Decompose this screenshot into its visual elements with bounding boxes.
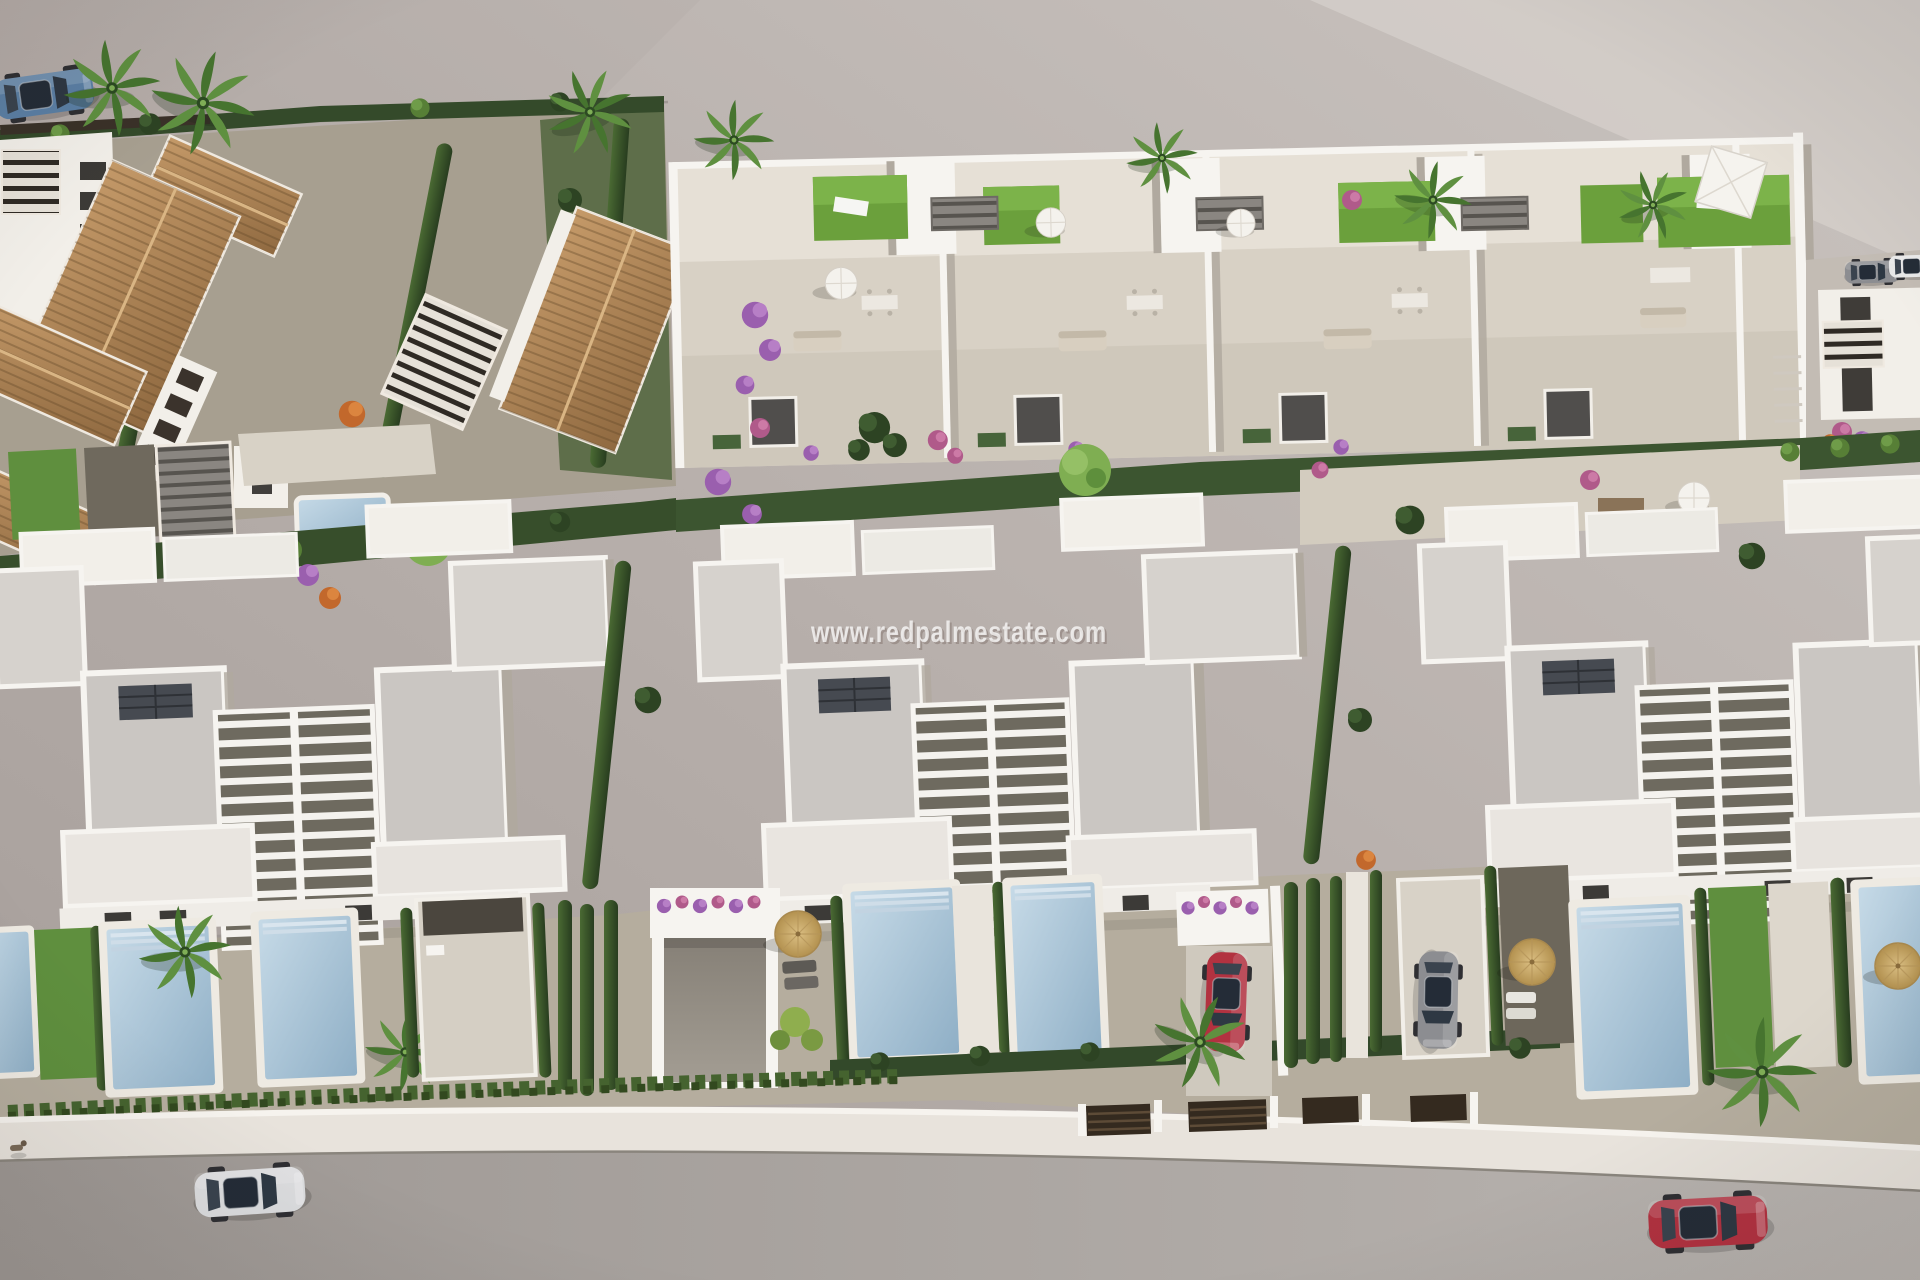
aerial-development-render: www.redpalmestate.com www.redpalmestate.… [0, 0, 1920, 1280]
watermark-text: www.redpalmestate.com [810, 616, 1107, 649]
render-canvas: www.redpalmestate.com www.redpalmestate.… [0, 0, 1920, 1280]
